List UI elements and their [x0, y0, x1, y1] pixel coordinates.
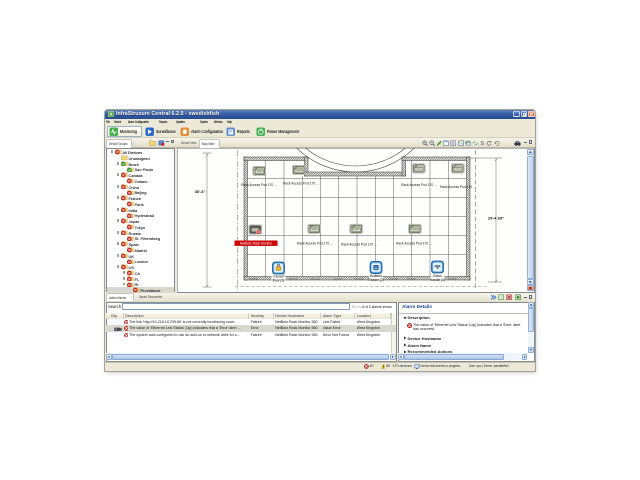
svg-text:MC58-4D: MC58-4D: [407, 279, 416, 281]
svg-text:Door (1): Door (1): [273, 279, 285, 283]
svg-text:S: S: [480, 141, 484, 147]
svg-text:Rack Access Pod 170 ...: Rack Access Pod 170 ...: [440, 185, 476, 189]
svg-text:MC58-4D: MC58-4D: [448, 279, 457, 281]
svg-text:Rack Access Pod 170 ...: Rack Access Pod 170 ...: [401, 183, 437, 187]
svg-text:Handle (1): Handle (1): [430, 278, 445, 282]
svg-text:MC58-4D: MC58-4D: [389, 279, 398, 281]
svg-text:MC58-4D: MC58-4D: [311, 279, 320, 281]
svg-text:Rack Access Pod 170 ...: Rack Access Pod 170 ...: [396, 242, 432, 246]
svg-text:Rack Access Pod 170 ...: Rack Access Pod 170 ...: [297, 242, 333, 246]
svg-text:MC58-4D: MC58-4D: [333, 279, 342, 281]
svg-text:29'-4 1/8": 29'-4 1/8": [488, 217, 504, 221]
svg-text:NetBotz Rack Monitor: NetBotz Rack Monitor: [240, 242, 273, 246]
svg-text:MC58-4D: MC58-4D: [355, 279, 364, 281]
svg-text:MC58-4D: MC58-4D: [249, 279, 258, 281]
svg-text:Rack Access Pod 170 ...: Rack Access Pod 170 ...: [341, 243, 377, 247]
svg-text:MC58-4D: MC58-4D: [289, 279, 298, 281]
svg-text:Rack Access Pod 170 ...: Rack Access Pod 170 ...: [241, 183, 277, 187]
svg-text:36'-6": 36'-6": [195, 189, 206, 194]
svg-text:Rack Access Pod 170 ...: Rack Access Pod 170 ...: [283, 181, 319, 185]
svg-text:Reader (2): Reader (2): [368, 278, 383, 282]
